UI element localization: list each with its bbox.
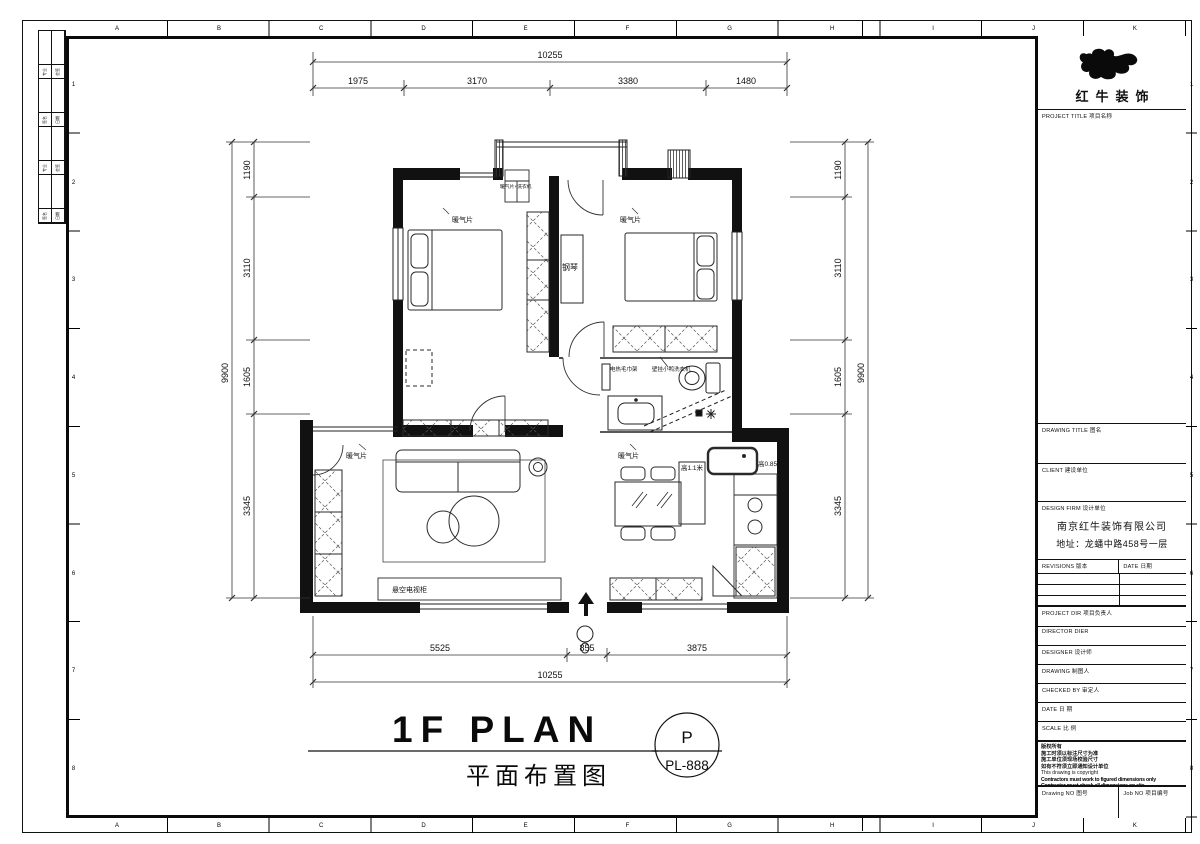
ruler-top: ABCDEFGHIJK [66, 21, 1186, 36]
ruler-letter: G [727, 26, 732, 32]
pillow [697, 269, 714, 299]
towel-radiator [602, 364, 610, 390]
revision-row [1038, 574, 1186, 585]
ruler-letter: C [319, 26, 323, 32]
designer-label: DESIGNER 设计师 [1038, 646, 1186, 656]
ruler-number: 7 [1190, 668, 1193, 674]
ruler-number: 4 [1190, 375, 1193, 381]
dim: 1605 [242, 367, 252, 387]
client-cell: CLIENT 建设单位 [1038, 464, 1186, 502]
floor-plan: 暖气片 暖气片 暖气片 暖气片 钢琴 暖气片+洗衣机 电热毛巾架 壁挂小鸭洗衣机… [215, 40, 900, 800]
plan-labels: 暖气片 暖气片 暖气片 暖气片 钢琴 暖气片+洗衣机 电热毛巾架 壁挂小鸭洗衣机… [346, 183, 784, 594]
dining-table [615, 482, 681, 526]
bed [408, 230, 502, 310]
ruler-letter: I [932, 26, 934, 32]
pillow [411, 234, 428, 268]
ruler-letter: B [217, 823, 221, 829]
signature-strip: 专业 会签 签名 日期 专业 会签 签名 日期 [38, 30, 66, 224]
radiator-label: 暖气片 [452, 215, 473, 224]
ruler-letter: F [626, 823, 630, 829]
speaker [529, 458, 547, 476]
client-label: CLIENT 建设单位 [1038, 464, 1186, 474]
title-block: 红牛装饰 PROJECT TITLE 项目名称 DRAWING TITLE 图名… [1035, 36, 1186, 818]
drawing-sheet: ABCDEFGHIJK ABCDEFGHIJK 12345678 1234567… [0, 0, 1200, 844]
revisions-header: REVISIONS 版本 DATE 日期 [1038, 560, 1186, 574]
coffee-table [427, 511, 459, 543]
balcony-unit-label: 暖气片+洗衣机 [500, 183, 532, 190]
dim-top-overall: 10255 [537, 50, 562, 60]
ruler-letter: E [524, 26, 528, 32]
dim: 5525 [430, 643, 450, 653]
radiator-label: 暖气片 [346, 451, 367, 460]
drawing-no-label: Drawing NO 图号 [1038, 787, 1118, 797]
revision-date-label: DATE 日期 [1119, 560, 1186, 570]
chair [651, 467, 675, 480]
ruler-letter: H [830, 823, 834, 829]
ruler-letter: K [1133, 823, 1137, 829]
design-firm-label: DESIGN FIRM 设计单位 [1038, 502, 1186, 512]
shower-line [644, 390, 726, 426]
dim: 1190 [833, 160, 843, 179]
wardrobe [527, 212, 549, 352]
dim: 1190 [242, 160, 252, 179]
pillow [411, 272, 428, 306]
plan-title-cn: 平面布置图 [466, 763, 611, 790]
bedroom1-furniture [403, 212, 549, 436]
sign-cell-text: 签名 [42, 116, 48, 124]
ruler-right: 12345678 [1186, 36, 1197, 818]
chair [651, 527, 675, 540]
stove-burner [748, 520, 762, 534]
scale-label: SCALE 比 例 [1038, 722, 1186, 732]
design-firm-address: 地址：龙蟠中路458号一层 [1038, 537, 1186, 550]
dim: 3110 [833, 258, 843, 277]
ruler-number: 8 [1190, 766, 1193, 772]
desk [406, 350, 432, 386]
drawing-label: DRAWING 制图人 [1038, 665, 1186, 675]
cabinet [315, 470, 342, 596]
windows [313, 140, 742, 609]
coffee-table [449, 496, 499, 546]
dim: 3345 [242, 496, 252, 516]
drawing-cell: DRAWING 制图人 [1038, 665, 1186, 684]
bar-height-label: 高1.1米 [681, 463, 704, 472]
project-title-label: PROJECT TITLE 项目名称 [1038, 110, 1186, 120]
dim: 1605 [833, 367, 843, 387]
sign-cell-text: 专业 [42, 68, 48, 76]
revision-row [1038, 596, 1186, 607]
kitchen-sink [708, 448, 757, 474]
towel-rack-label: 电热毛巾架 [610, 365, 638, 373]
shower-head-icon [706, 409, 716, 419]
ruler-letter: B [217, 26, 221, 32]
dim: 3875 [687, 643, 707, 653]
ruler-number: 3 [1190, 277, 1193, 283]
living-furniture [315, 450, 561, 600]
ruler-letter: D [421, 26, 425, 32]
dim-bottom-overall: 10255 [537, 670, 562, 680]
chair [621, 527, 645, 540]
ruler-letter: A [115, 823, 119, 829]
ruler-letter: K [1133, 26, 1137, 32]
checked-by-cell: CHECKED BY 审定人 [1038, 684, 1186, 703]
ruler-bottom: ABCDEFGHIJK [66, 818, 1186, 833]
revisions-label: REVISIONS 版本 [1038, 560, 1118, 570]
project-dir-cell: PROJECT DIR 项目负责人 [1038, 607, 1186, 627]
radiator-label: 暖气片 [618, 451, 639, 460]
washer-label: 壁挂小鸭洗衣机 [652, 365, 691, 373]
drawing-title-cell: DRAWING TITLE 图名 [1038, 424, 1186, 464]
ruler-number: 2 [1190, 180, 1193, 186]
dim: 3110 [242, 258, 252, 277]
ruler-letter: I [932, 823, 934, 829]
sign-cell-text: 会签 [55, 68, 61, 76]
toilet-tank [706, 363, 720, 393]
drawing-title-label: DRAWING TITLE 图名 [1038, 424, 1186, 434]
scale-cell: SCALE 比 例 [1038, 722, 1186, 742]
sign-cell-text: 专业 [42, 164, 48, 172]
dim: 855 [579, 643, 594, 653]
dim: 1975 [348, 76, 368, 86]
dim-right-overall: 9900 [856, 363, 866, 383]
entrance-arrow-icon [578, 592, 594, 604]
ruler-letter: J [1032, 823, 1035, 829]
chair [621, 467, 645, 480]
dim: 3345 [833, 496, 843, 516]
rug [383, 460, 545, 562]
logo-area: 红牛装饰 [1038, 36, 1186, 110]
sign-cell-text: 日期 [55, 212, 61, 220]
dim-left-overall: 9900 [220, 363, 230, 383]
revision-row [1038, 585, 1186, 596]
numbers-row: Drawing NO 图号 Job NO 项目编号 [1038, 787, 1186, 818]
bedroom2-furniture [561, 233, 717, 352]
tv-cabinet-label: 悬空电视柜 [392, 585, 427, 594]
sign-cell-text: 签名 [42, 212, 48, 220]
job-no-label: Job NO 项目编号 [1119, 787, 1186, 797]
ruler-letter: A [115, 26, 119, 32]
director-label: DIRECTOR DIER [1038, 627, 1186, 635]
dim: 3380 [618, 76, 638, 86]
stamp-code: PL-888 [665, 758, 709, 773]
project-title-cell: PROJECT TITLE 项目名称 [1038, 110, 1186, 424]
ruler-letter: C [319, 823, 323, 829]
sign-cell-text: 日期 [55, 116, 61, 124]
dim: 3170 [467, 76, 487, 86]
date-label: DATE 日 期 [1038, 703, 1186, 713]
fold-mark [862, 20, 863, 36]
closet-strip [403, 420, 548, 436]
checked-by-label: CHECKED BY 审定人 [1038, 684, 1186, 694]
brand-bull-icon [1073, 45, 1151, 85]
bed [625, 233, 717, 301]
piano-label: 钢琴 [562, 262, 578, 272]
ruler-number: 5 [1190, 473, 1193, 479]
ruler-number: 6 [1190, 571, 1193, 577]
director-cell: DIRECTOR DIER [1038, 627, 1186, 646]
designer-cell: DESIGNER 设计师 [1038, 646, 1186, 665]
design-firm-cell: DESIGN FIRM 设计单位 南京红牛装饰有限公司 地址：龙蟠中路458号一… [1038, 502, 1186, 560]
date-cell: DATE 日 期 [1038, 703, 1186, 722]
ruler-letter: H [830, 26, 834, 32]
ruler-letter: J [1032, 26, 1035, 32]
brand-name: 红牛装饰 [1075, 86, 1155, 105]
ruler-letter: F [626, 26, 630, 32]
pillow [697, 236, 714, 266]
stamp-letter: P [681, 728, 692, 747]
dim: 1480 [736, 76, 756, 86]
ruler-letter: D [421, 823, 425, 829]
ruler-number: 1 [1190, 82, 1193, 88]
copyright-note: 版权所有 施工时须以标注尺寸为准 施工单位须现场校验尺寸 如有不符须立即通知设计… [1038, 742, 1186, 787]
project-dir-label: PROJECT DIR 项目负责人 [1038, 607, 1186, 617]
ruler-letter: G [727, 823, 732, 829]
stove-burner [748, 498, 762, 512]
radiator-label: 暖气片 [620, 215, 641, 224]
sign-cell-text: 会签 [55, 164, 61, 172]
design-firm-name: 南京红牛装饰有限公司 [1038, 518, 1186, 533]
sink-height-label: 高0.85米 [758, 459, 784, 468]
ruler-letter: E [524, 823, 528, 829]
drain [696, 410, 702, 416]
plan-title-en: 1F PLAN [392, 709, 602, 750]
fold-mark [862, 818, 863, 831]
plan-title: 1F PLAN 平面布置图 P PL-888 [308, 709, 722, 790]
